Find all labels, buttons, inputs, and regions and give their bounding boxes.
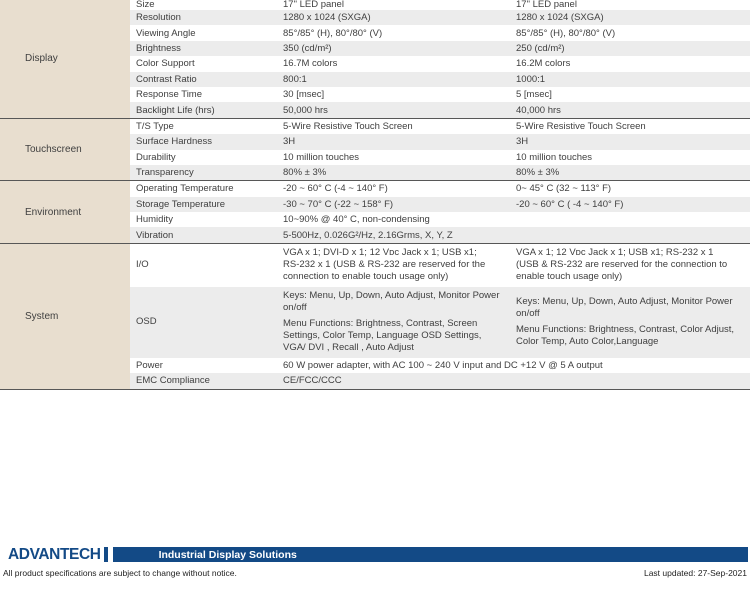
spec-row: Resolution1280 x 1024 (SXGA)1280 x 1024 … xyxy=(130,10,750,25)
attribute-cell: I/O xyxy=(130,259,280,271)
spec-row: I/OVGA x 1; DVI-D x 1; 12 Vᴅᴄ Jack x 1; … xyxy=(130,244,750,287)
value-cell-model1: 85°/85° (H), 80°/80° (V) xyxy=(280,28,513,39)
attribute-cell: Color Support xyxy=(130,58,280,69)
spec-row: Humidity10~90% @ 40° C, non-condensing xyxy=(130,212,750,227)
footer-disclaimer-row: All product specifications are subject t… xyxy=(0,568,750,578)
value-cell-model1: 3H xyxy=(280,136,513,147)
footer-bar-row: ADVANTECH Industrial Display Solutions xyxy=(0,547,750,563)
spec-section-environment: EnvironmentOperating Temperature-20 ~ 60… xyxy=(0,180,750,243)
spec-row: Brightness350 (cd/m²)250 (cd/m²) xyxy=(130,41,750,56)
attribute-cell: Size xyxy=(130,0,280,10)
category-cell: System xyxy=(0,244,130,389)
spec-row: Vibration5-500Hz, 0.026G²/Hz, 2.16Grms, … xyxy=(130,227,750,242)
attribute-cell: Viewing Angle xyxy=(130,28,280,39)
spec-row: Power60 W power adapter, with AC 100 ~ 2… xyxy=(130,358,750,373)
attribute-cell: Transparency xyxy=(130,167,280,178)
value-cell-model1: 50,000 hrs xyxy=(280,105,513,116)
value-cell-model1: 5-Wire Resistive Touch Screen xyxy=(280,121,513,132)
attribute-cell: OSD xyxy=(130,316,280,328)
category-cell: Display xyxy=(0,0,130,118)
spec-row: Viewing Angle85°/85° (H), 80°/80° (V)85°… xyxy=(130,25,750,40)
value-cell-model2: 3H xyxy=(513,136,750,147)
attribute-cell: Durability xyxy=(130,152,280,163)
spec-row: Contrast Ratio800:11000:1 xyxy=(130,72,750,87)
advantech-logo: ADVANTECH xyxy=(8,546,101,564)
spec-row: Size17" LED panel17" LED panel xyxy=(130,0,750,10)
value-cell-model1: 350 (cd/m²) xyxy=(280,43,513,54)
value-cell-model2: Keys: Menu, Up, Down, Auto Adjust, Monit… xyxy=(513,296,750,348)
value-cell-model1: 800:1 xyxy=(280,74,513,85)
value-cell-model2: -20 ~ 60° C ( -4 ~ 140° F) xyxy=(513,199,750,210)
spec-table: DisplaySize17" LED panel17" LED panelRes… xyxy=(0,0,750,390)
attribute-cell: Vibration xyxy=(130,230,280,241)
spec-row: EMC ComplianceCE/FCC/CCC xyxy=(130,373,750,388)
value-cell-model1: 30 [msec] xyxy=(280,89,513,100)
value-paragraph: Menu Functions: Brightness, Contrast, Sc… xyxy=(283,318,513,354)
value-paragraph: Keys: Menu, Up, Down, Auto Adjust, Monit… xyxy=(516,296,750,320)
value-cell-model2: VGA x 1; 12 Vᴅᴄ Jack x 1; USB x1; RS-232… xyxy=(513,247,750,283)
spec-row: Surface Hardness3H3H xyxy=(130,134,750,149)
section-rows: I/OVGA x 1; DVI-D x 1; 12 Vᴅᴄ Jack x 1; … xyxy=(130,244,750,389)
value-cell-model1: 10~90% @ 40° C, non-condensing xyxy=(280,214,513,225)
value-cell-model2: 16.2M colors xyxy=(513,58,750,69)
attribute-cell: EMC Compliance xyxy=(130,375,280,386)
category-cell: Touchscreen xyxy=(0,119,130,181)
attribute-cell: Surface Hardness xyxy=(130,136,280,147)
value-paragraph: Menu Functions: Brightness, Contrast, Co… xyxy=(516,324,750,348)
footer: ADVANTECH Industrial Display Solutions A… xyxy=(0,547,750,578)
value-cell-model1: 16.7M colors xyxy=(280,58,513,69)
value-paragraph: Keys: Menu, Up, Down, Auto Adjust, Monit… xyxy=(283,290,513,314)
section-rows: Operating Temperature-20 ~ 60° C (-4 ~ 1… xyxy=(130,181,750,243)
value-cell-model2: 80% ± 3% xyxy=(513,167,750,178)
attribute-cell: Storage Temperature xyxy=(130,199,280,210)
value-cell-model2: 5 [msec] xyxy=(513,89,750,100)
value-cell-model1: 1280 x 1024 (SXGA) xyxy=(280,12,513,23)
spec-row: Transparency80% ± 3%80% ± 3% xyxy=(130,165,750,180)
value-cell-model2: 5-Wire Resistive Touch Screen xyxy=(513,121,750,132)
attribute-cell: Resolution xyxy=(130,12,280,23)
attribute-cell: Power xyxy=(130,360,280,371)
value-cell-model1: CE/FCC/CCC xyxy=(280,375,513,386)
last-updated-text: Last updated: 27-Sep-2021 xyxy=(644,568,747,578)
spec-section-touchscreen: TouchscreenT/S Type5-Wire Resistive Touc… xyxy=(0,118,750,181)
value-cell-model2: 250 (cd/m²) xyxy=(513,43,750,54)
value-cell-model1: 17" LED panel xyxy=(280,0,513,10)
attribute-cell: Brightness xyxy=(130,43,280,54)
value-cell-model1: VGA x 1; DVI-D x 1; 12 Vᴅᴄ Jack x 1; USB… xyxy=(280,247,513,283)
logo-divider xyxy=(104,547,108,562)
value-cell-model2: 17" LED panel xyxy=(513,0,750,10)
value-cell-model1: -20 ~ 60° C (-4 ~ 140° F) xyxy=(280,183,513,194)
value-cell-model2: 10 million touches xyxy=(513,152,750,163)
value-cell-model2: 85°/85° (H), 80°/80° (V) xyxy=(513,28,750,39)
attribute-cell: Humidity xyxy=(130,214,280,225)
attribute-cell: Operating Temperature xyxy=(130,183,280,194)
spec-section-display: DisplaySize17" LED panel17" LED panelRes… xyxy=(0,0,750,118)
spec-section-system: SystemI/OVGA x 1; DVI-D x 1; 12 Vᴅᴄ Jack… xyxy=(0,243,750,389)
spec-row: Durability10 million touches10 million t… xyxy=(130,150,750,165)
value-cell-model2: 40,000 hrs xyxy=(513,105,750,116)
value-cell-model1: 10 million touches xyxy=(280,152,513,163)
section-rows: T/S Type5-Wire Resistive Touch Screen5-W… xyxy=(130,119,750,181)
attribute-cell: Contrast Ratio xyxy=(130,74,280,85)
spec-row: Storage Temperature-30 ~ 70° C (-22 ~ 15… xyxy=(130,197,750,212)
value-cell-model1: 5-500Hz, 0.026G²/Hz, 2.16Grms, X, Y, Z xyxy=(280,230,513,241)
value-cell-model2: 1280 x 1024 (SXGA) xyxy=(513,12,750,23)
spec-row: OSDKeys: Menu, Up, Down, Auto Adjust, Mo… xyxy=(130,287,750,358)
section-rows: Size17" LED panel17" LED panelResolution… xyxy=(130,0,750,118)
footer-tagline: Industrial Display Solutions xyxy=(159,549,297,561)
attribute-cell: Backlight Life (hrs) xyxy=(130,105,280,116)
value-cell-model1: -30 ~ 70° C (-22 ~ 158° F) xyxy=(280,199,513,210)
category-cell: Environment xyxy=(0,181,130,243)
value-cell-span: 60 W power adapter, with AC 100 ~ 240 V … xyxy=(280,360,750,371)
disclaimer-text: All product specifications are subject t… xyxy=(3,568,237,578)
spec-row: T/S Type5-Wire Resistive Touch Screen5-W… xyxy=(130,119,750,134)
attribute-cell: T/S Type xyxy=(130,121,280,132)
attribute-cell: Response Time xyxy=(130,89,280,100)
spec-row: Response Time30 [msec]5 [msec] xyxy=(130,87,750,102)
value-cell-model2: 0~ 45° C (32 ~ 113° F) xyxy=(513,183,750,194)
value-cell-model1: Keys: Menu, Up, Down, Auto Adjust, Monit… xyxy=(280,290,513,354)
spec-row: Operating Temperature-20 ~ 60° C (-4 ~ 1… xyxy=(130,181,750,196)
spec-row: Color Support16.7M colors16.2M colors xyxy=(130,56,750,71)
value-cell-model1: 80% ± 3% xyxy=(280,167,513,178)
spec-row: Backlight Life (hrs)50,000 hrs40,000 hrs xyxy=(130,102,750,117)
value-cell-model2: 1000:1 xyxy=(513,74,750,85)
footer-blue-bar: Industrial Display Solutions xyxy=(113,547,748,562)
